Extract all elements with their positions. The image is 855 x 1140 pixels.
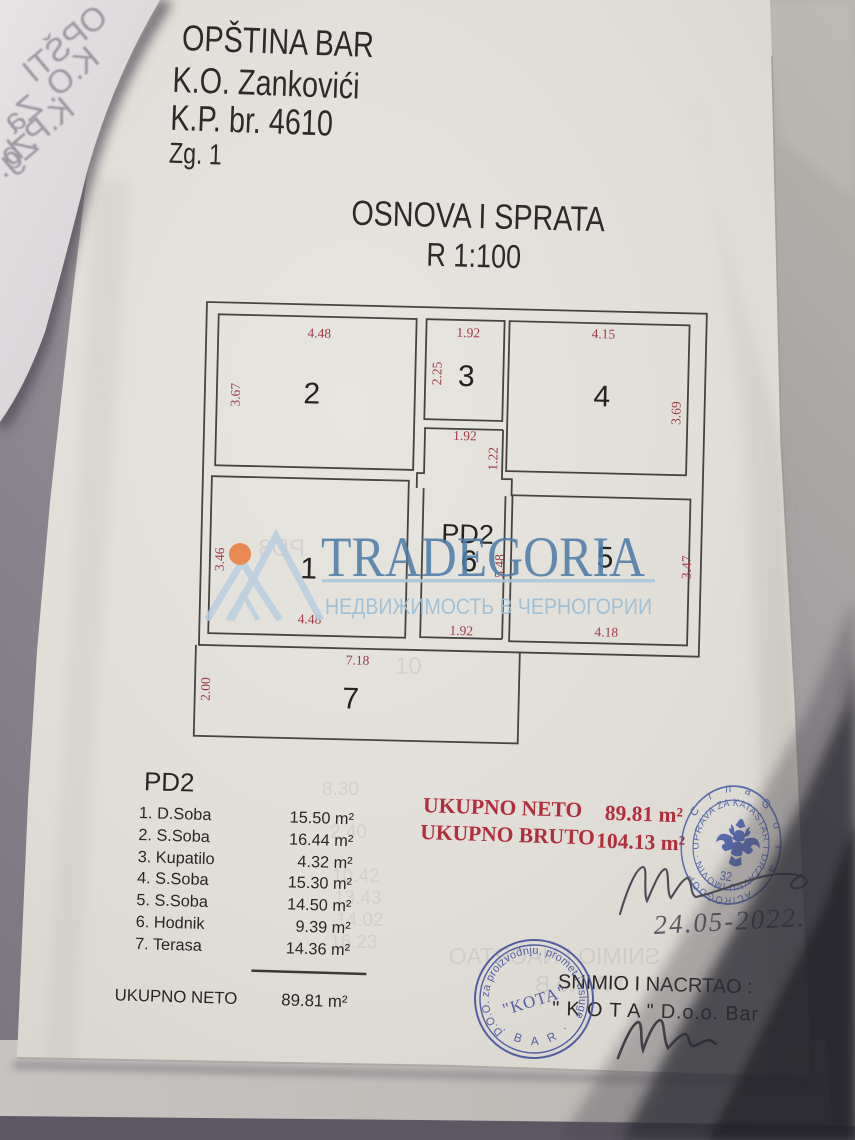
svg-text:10: 10 [395,653,422,680]
svg-text:3: 3 [458,360,475,393]
svg-text:1.92: 1.92 [456,325,480,341]
svg-text:НЕДВИЖИМОСТЬ В ЧЕРНОГОРИИ: НЕДВИЖИМОСТЬ В ЧЕРНОГОРИИ [325,594,652,619]
svg-text:9.39 m²: 9.39 m² [295,918,351,938]
svg-text:3.67: 3.67 [228,382,244,406]
svg-text:1.92: 1.92 [453,428,477,444]
svg-text:14.50 m²: 14.50 m² [287,895,352,915]
svg-text:4.48: 4.48 [307,325,331,341]
svg-text:2.00: 2.00 [198,677,214,701]
svg-text:2: 2 [303,377,320,410]
svg-text:3.69: 3.69 [668,401,684,425]
svg-text:3.46: 3.46 [212,547,228,571]
svg-text:4. S.Soba: 4. S.Soba [137,869,210,889]
svg-text:R 1:100: R 1:100 [426,237,522,276]
svg-text:4.15: 4.15 [591,326,615,342]
svg-text:3. Kupatilo: 3. Kupatilo [137,848,214,868]
svg-text:89.81 m²: 89.81 m² [605,801,684,827]
svg-text:4.32 m²: 4.32 m² [297,853,353,873]
svg-text:OPŠTINA BAR: OPŠTINA BAR [181,17,374,65]
svg-text:1. D.Soba: 1. D.Soba [139,804,213,824]
svg-text:5. S.Soba: 5. S.Soba [136,891,209,911]
svg-text:104.13 m²: 104.13 m² [596,829,686,856]
svg-text:UKUPNO NETO: UKUPNO NETO [114,985,237,1008]
svg-text:14.36 m²: 14.36 m² [286,939,351,959]
svg-text:16.44 m²: 16.44 m² [289,830,354,850]
svg-text:7. Terasa: 7. Terasa [135,935,203,955]
svg-text:7.18: 7.18 [346,652,370,668]
svg-text:Zg. 1: Zg. 1 [168,136,222,171]
svg-text:15.50 m²: 15.50 m² [289,808,354,828]
svg-text:8.30: 8.30 [322,779,359,800]
svg-text:1.92: 1.92 [449,623,473,639]
svg-text:PD2: PD2 [144,766,195,797]
svg-text:3.47: 3.47 [679,555,695,579]
svg-text:15.30 m²: 15.30 m² [287,873,352,893]
svg-text:OSNOVA I SPRATA: OSNOVA I SPRATA [351,193,606,239]
svg-text:2.25: 2.25 [429,361,445,385]
svg-text:1.22: 1.22 [485,447,501,471]
svg-text:7: 7 [342,682,359,715]
svg-text:89.81 m²: 89.81 m² [281,990,348,1011]
svg-text:2. S.Soba: 2. S.Soba [138,826,211,846]
svg-text:6. Hodnik: 6. Hodnik [136,913,206,933]
svg-text:4.18: 4.18 [594,624,618,640]
svg-text:UKUPNO NETO: UKUPNO NETO [423,793,583,822]
svg-text:4: 4 [593,380,610,413]
